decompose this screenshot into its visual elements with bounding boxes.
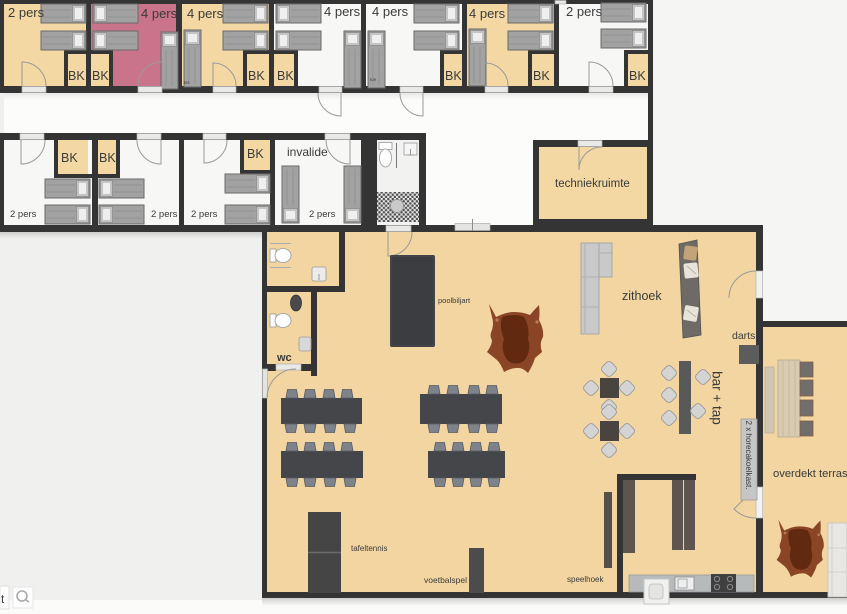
svg-text:BK: BK <box>99 151 116 165</box>
svg-text:darts: darts <box>732 330 755 342</box>
svg-text:2 pers: 2 pers <box>10 209 37 220</box>
svg-text:ter.: ter. <box>184 80 190 85</box>
svg-text:BK: BK <box>92 69 109 83</box>
svg-text:BK: BK <box>445 69 462 83</box>
svg-text:bar + tap: bar + tap <box>709 371 724 425</box>
svg-text:invalide: invalide <box>287 145 328 159</box>
svg-text:2 x horecakoelkast.: 2 x horecakoelkast. <box>744 421 753 490</box>
svg-text:toe: toe <box>370 77 377 82</box>
svg-text:4 pers: 4 pers <box>324 4 361 19</box>
svg-text:BK: BK <box>629 69 646 83</box>
svg-text:voetbalspel: voetbalspel <box>424 575 467 585</box>
svg-text:techniekruimte: techniekruimte <box>555 178 630 190</box>
svg-text:poolbiljart: poolbiljart <box>438 296 471 305</box>
svg-text:overdekt terras: overdekt terras <box>773 468 847 480</box>
svg-text:BK: BK <box>248 69 265 83</box>
svg-text:BK: BK <box>277 69 294 83</box>
svg-text:4 pers: 4 pers <box>372 4 409 19</box>
svg-text:BK: BK <box>533 69 550 83</box>
svg-text:tafeltennis: tafeltennis <box>351 544 387 553</box>
svg-text:BK: BK <box>61 151 78 165</box>
svg-text:4 pers: 4 pers <box>469 6 506 21</box>
svg-text:4 pers: 4 pers <box>187 6 224 21</box>
svg-text:2 pers: 2 pers <box>191 209 218 220</box>
svg-text:BK: BK <box>68 69 85 83</box>
svg-text:zithoek: zithoek <box>622 289 662 303</box>
svg-text:2 pers: 2 pers <box>566 4 603 19</box>
svg-text:speelhoek: speelhoek <box>567 575 604 584</box>
svg-text:2 pers: 2 pers <box>8 5 45 20</box>
svg-text:2 pers: 2 pers <box>151 209 178 220</box>
svg-text:2 pers: 2 pers <box>309 209 336 220</box>
svg-text:wc: wc <box>276 352 292 364</box>
svg-text:4 pers: 4 pers <box>141 6 178 21</box>
svg-text:BK: BK <box>247 147 264 161</box>
